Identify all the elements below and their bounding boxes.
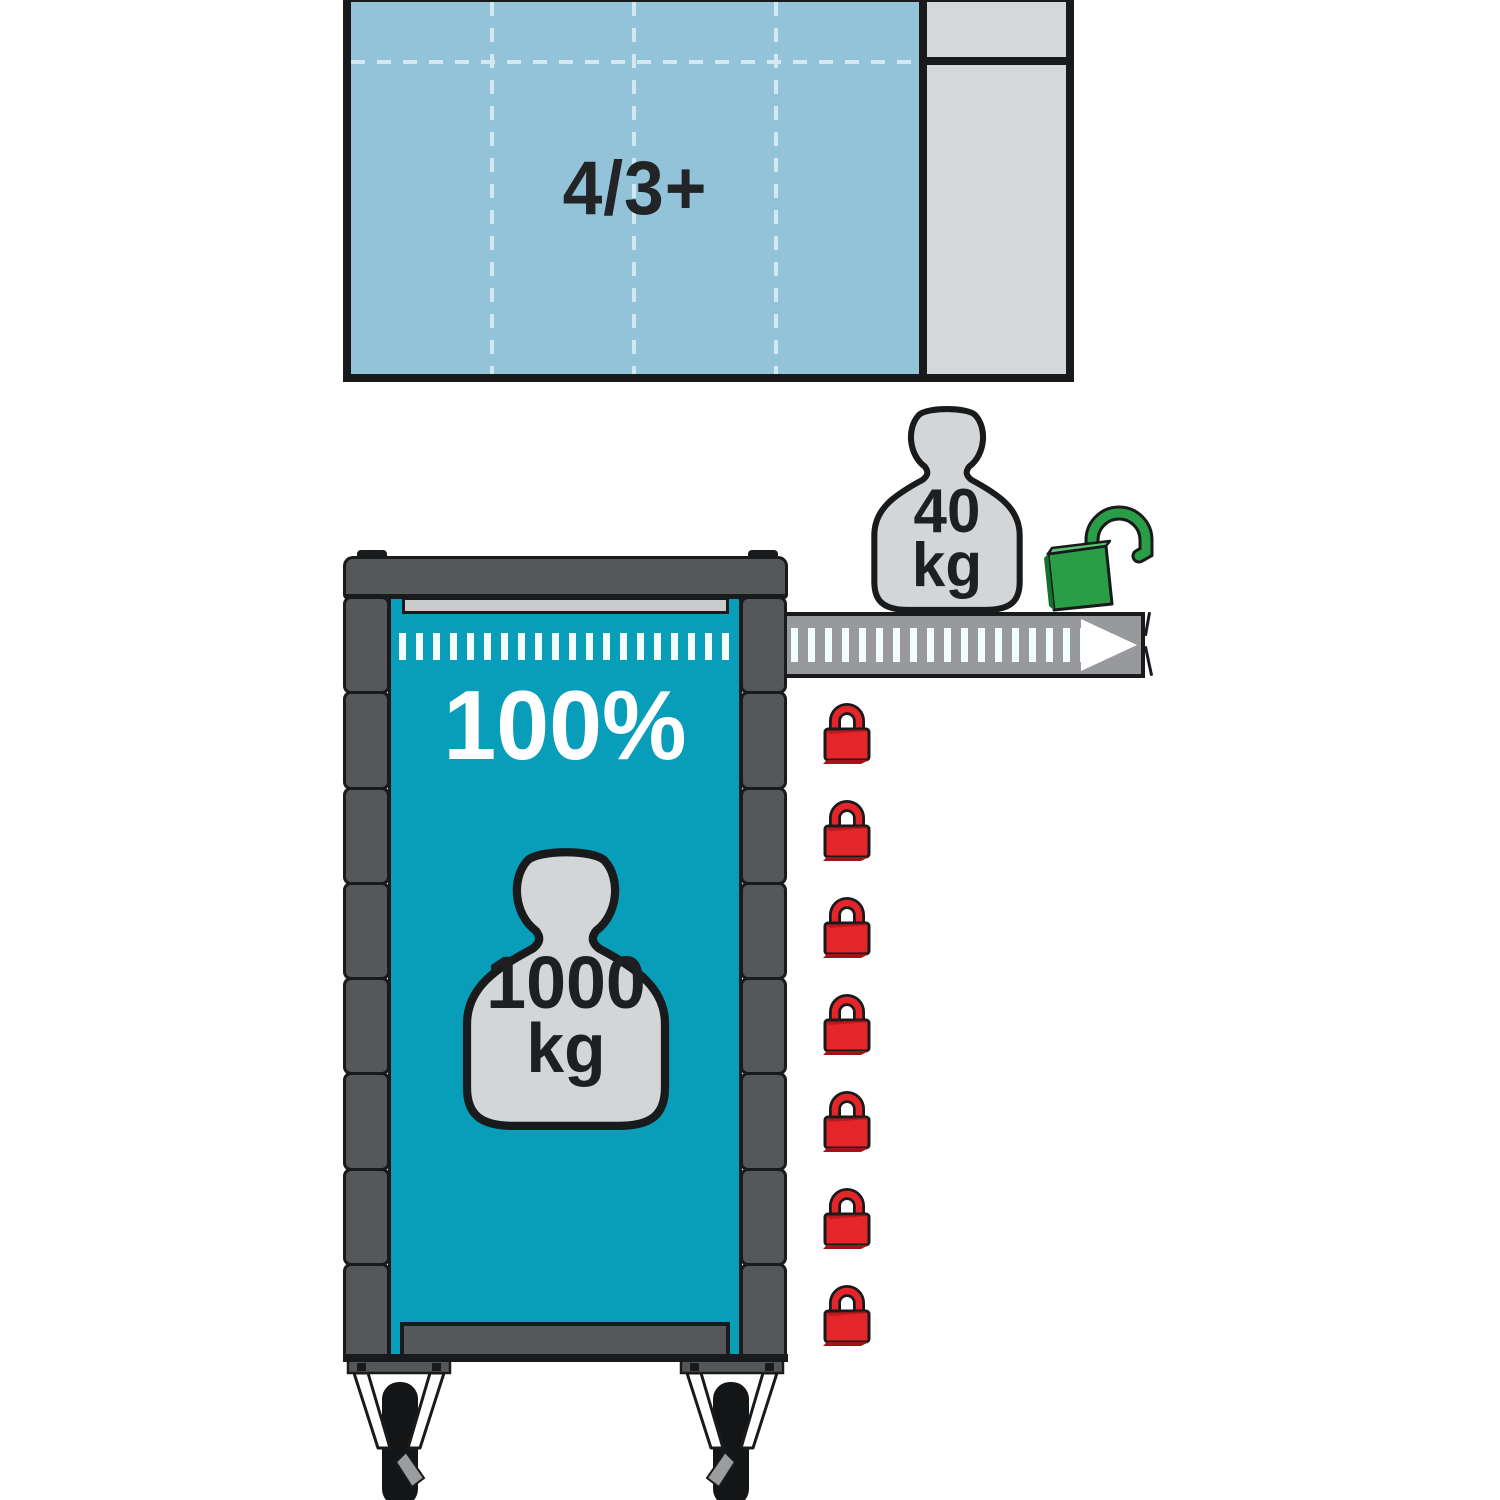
trolley-top-cap [343,556,788,599]
frame-segment [740,977,787,1075]
total-load-unit: kg [459,1008,672,1088]
frame-segment [343,1263,390,1361]
slide-ticks-drawer [791,628,1083,662]
drawer-load-weight: 40 kg [866,402,1028,614]
drawer-layout-panel: 4/3+ [343,0,1074,382]
caster-right [677,1360,787,1500]
frame-segment [740,596,787,694]
closed-padlock-icon [821,1280,873,1348]
drawer-load-unit: kg [868,530,1025,601]
closed-padlock-icon [821,795,873,863]
trolley-base-bar [400,1322,730,1358]
frame-segment [343,787,390,885]
drawer-handle-mark [1144,612,1151,636]
drawer-handle-mark [1144,646,1153,676]
closed-padlock-icon [821,989,873,1057]
side-compartment-column [927,2,1066,374]
closed-padlock-icon [821,1086,873,1154]
extended-drawer [785,612,1145,678]
frame-segment [740,1263,787,1361]
locked-drawers-column [821,698,873,1378]
total-load-weight: 1000 kg [456,828,676,1146]
closed-padlock-icon [821,892,873,960]
frame-segment [343,1168,390,1266]
trolley-bottom-edge [343,1354,788,1362]
frame-segment [343,1072,390,1170]
closed-padlock-icon [821,1183,873,1251]
frame-segment [343,977,390,1075]
caster-left [344,1360,454,1500]
side-compartment-top [927,2,1066,57]
frame-segment [740,882,787,980]
drawer-config-label: 4/3+ [368,2,902,374]
tool-trolley-feature-diagram: 4/3+ 100% 40 kg 1000 kg [0,0,1500,1500]
frame-segment [343,882,390,980]
frame-segment [740,787,787,885]
slide-ticks-front [399,633,737,660]
worktop-edge-strip [402,597,729,614]
frame-segment [343,691,390,789]
drawer-layout-area: 4/3+ [351,2,919,374]
closed-padlock-icon [821,698,873,766]
frame-segment [343,596,390,694]
side-compartment-main [927,65,1066,374]
trolley-frame-right [740,596,787,1359]
frame-segment [740,1168,787,1266]
extension-arrow-icon [1081,619,1137,671]
open-padlock-icon [1042,496,1160,614]
trolley-frame-left [343,596,390,1359]
full-extension-label: 100% [393,668,736,783]
frame-segment [740,1072,787,1170]
frame-segment [740,691,787,789]
